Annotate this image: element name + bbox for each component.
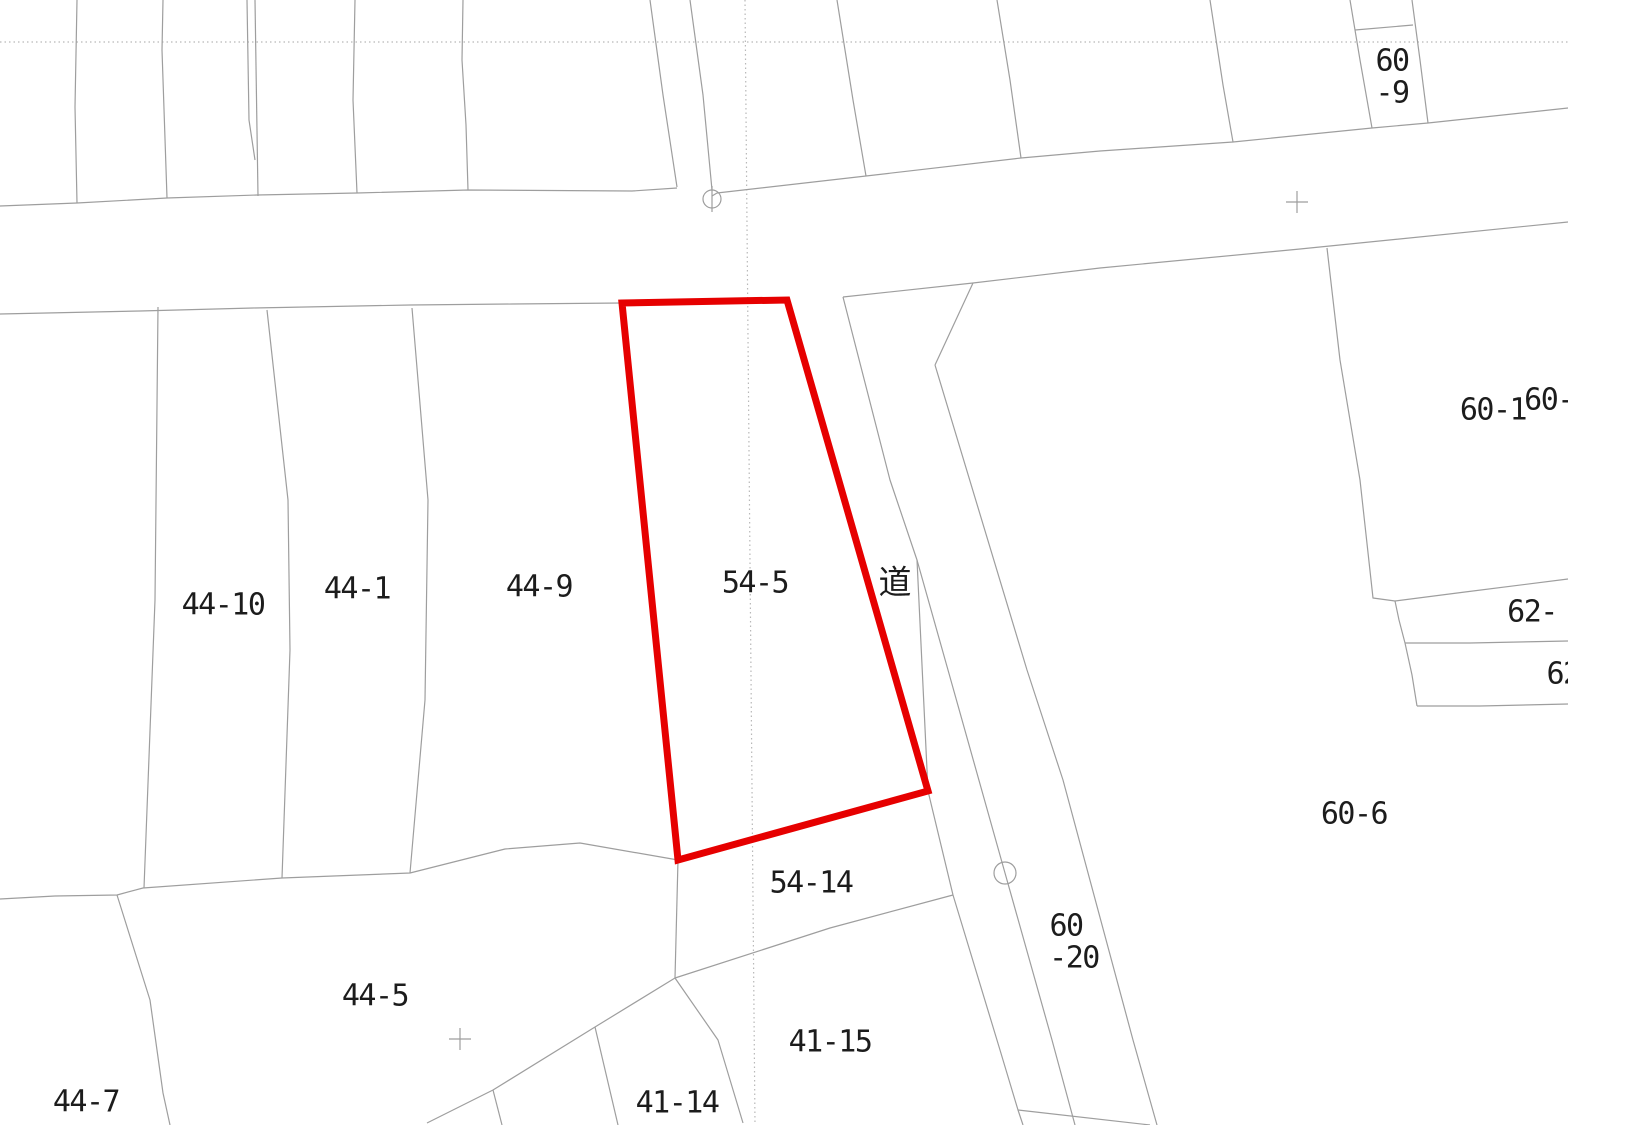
upper-parcel-boundary-6: [837, 0, 866, 176]
parcel-label-44-10: 44-10: [182, 588, 265, 623]
cadastral-map[interactable]: 44-1044-144-954-5道54-1460-2041-1541-1444…: [0, 0, 1568, 1125]
grid-line-vertical: [745, 0, 755, 1125]
upper-parcel-boundary-8: [1210, 0, 1233, 142]
boundary-44-1-44-9: [267, 310, 290, 878]
parcel-label-60-1: 60-1: [1460, 393, 1527, 428]
lower-block-top-boundary: [0, 843, 678, 899]
upper-lane-right: [690, 0, 712, 190]
parcel-label-60-6: 60-6: [1321, 797, 1388, 832]
parcel-label-60-9-line2: -9: [1375, 76, 1409, 111]
strip-east-boundary: [935, 365, 1157, 1125]
strip-west-boundary: [843, 297, 1023, 1125]
upper-parcel-boundary-1: [75, 0, 77, 203]
boundary-44-10-44-1: [144, 307, 158, 888]
branch-44-5: [493, 1090, 502, 1125]
parcel-label-62-cut: 62-: [1507, 595, 1557, 630]
notch-boundary: [935, 283, 973, 365]
upper-parcel-boundary-5: [462, 0, 468, 190]
parcel-label-54-14: 54-14: [770, 866, 853, 901]
parcel-label-44-9: 44-9: [506, 570, 573, 605]
strip-62-left-step2: [1405, 643, 1417, 706]
parcel-60-9-left: [1350, 0, 1372, 128]
upper-lane-left: [650, 0, 677, 187]
upper-parcel-boundary-4: [353, 0, 357, 193]
strip-62-left-step: [1395, 601, 1405, 643]
parcel-60-9-top: [1355, 25, 1413, 30]
upper-parcel-boundary-2: [162, 0, 167, 198]
parcel-label-41-14: 41-14: [636, 1086, 719, 1121]
parcel-60-9-right: [1412, 0, 1428, 123]
parcel-label-62-cut2: 62: [1546, 657, 1568, 692]
parcel-label-60-9-line1: 60: [1375, 44, 1409, 79]
parcel-label-60-20-line2: -20: [1049, 941, 1099, 976]
strip-62-divider: [1405, 641, 1568, 643]
parcel-41-14-left: [595, 1027, 618, 1125]
road-bottom-edge-left: [0, 303, 622, 314]
bottom-right-branch: [1018, 1110, 1150, 1125]
upper-parcel-boundary-7: [997, 0, 1021, 158]
upper-parcel-boundary-3a: [247, 0, 255, 160]
road-label-michi: 道: [879, 563, 912, 602]
road-bottom-edge-right: [843, 222, 1568, 297]
parcel-44-7-east: [117, 895, 170, 1125]
road-top-edge-right: [712, 108, 1568, 196]
boundary-44-9-right: [410, 308, 428, 873]
parcel-label-44-1: 44-1: [324, 572, 391, 607]
parcel-label-41-15: 41-15: [789, 1025, 872, 1060]
map-canvas: 44-1044-144-954-5道54-1460-2041-1541-1444…: [0, 0, 1568, 1125]
road-top-edge-left: [0, 188, 677, 206]
parcel-60-1-left: [1327, 248, 1395, 601]
strip-62-bottom: [1417, 704, 1568, 706]
parcel-label-60-20-line1: 60: [1049, 909, 1083, 944]
upper-parcel-boundary-3b: [255, 0, 258, 196]
parcel-label-44-7: 44-7: [53, 1085, 119, 1120]
parcel-label-54-5: 54-5: [722, 566, 788, 601]
parcel-54-14-left: [675, 860, 678, 978]
parcel-label-44-5: 44-5: [342, 979, 408, 1014]
cadastral-map-page: { "map": { "background": "#ffffff", "lin…: [0, 0, 1625, 1125]
parcel-label-60-cut: 60-: [1524, 383, 1568, 418]
